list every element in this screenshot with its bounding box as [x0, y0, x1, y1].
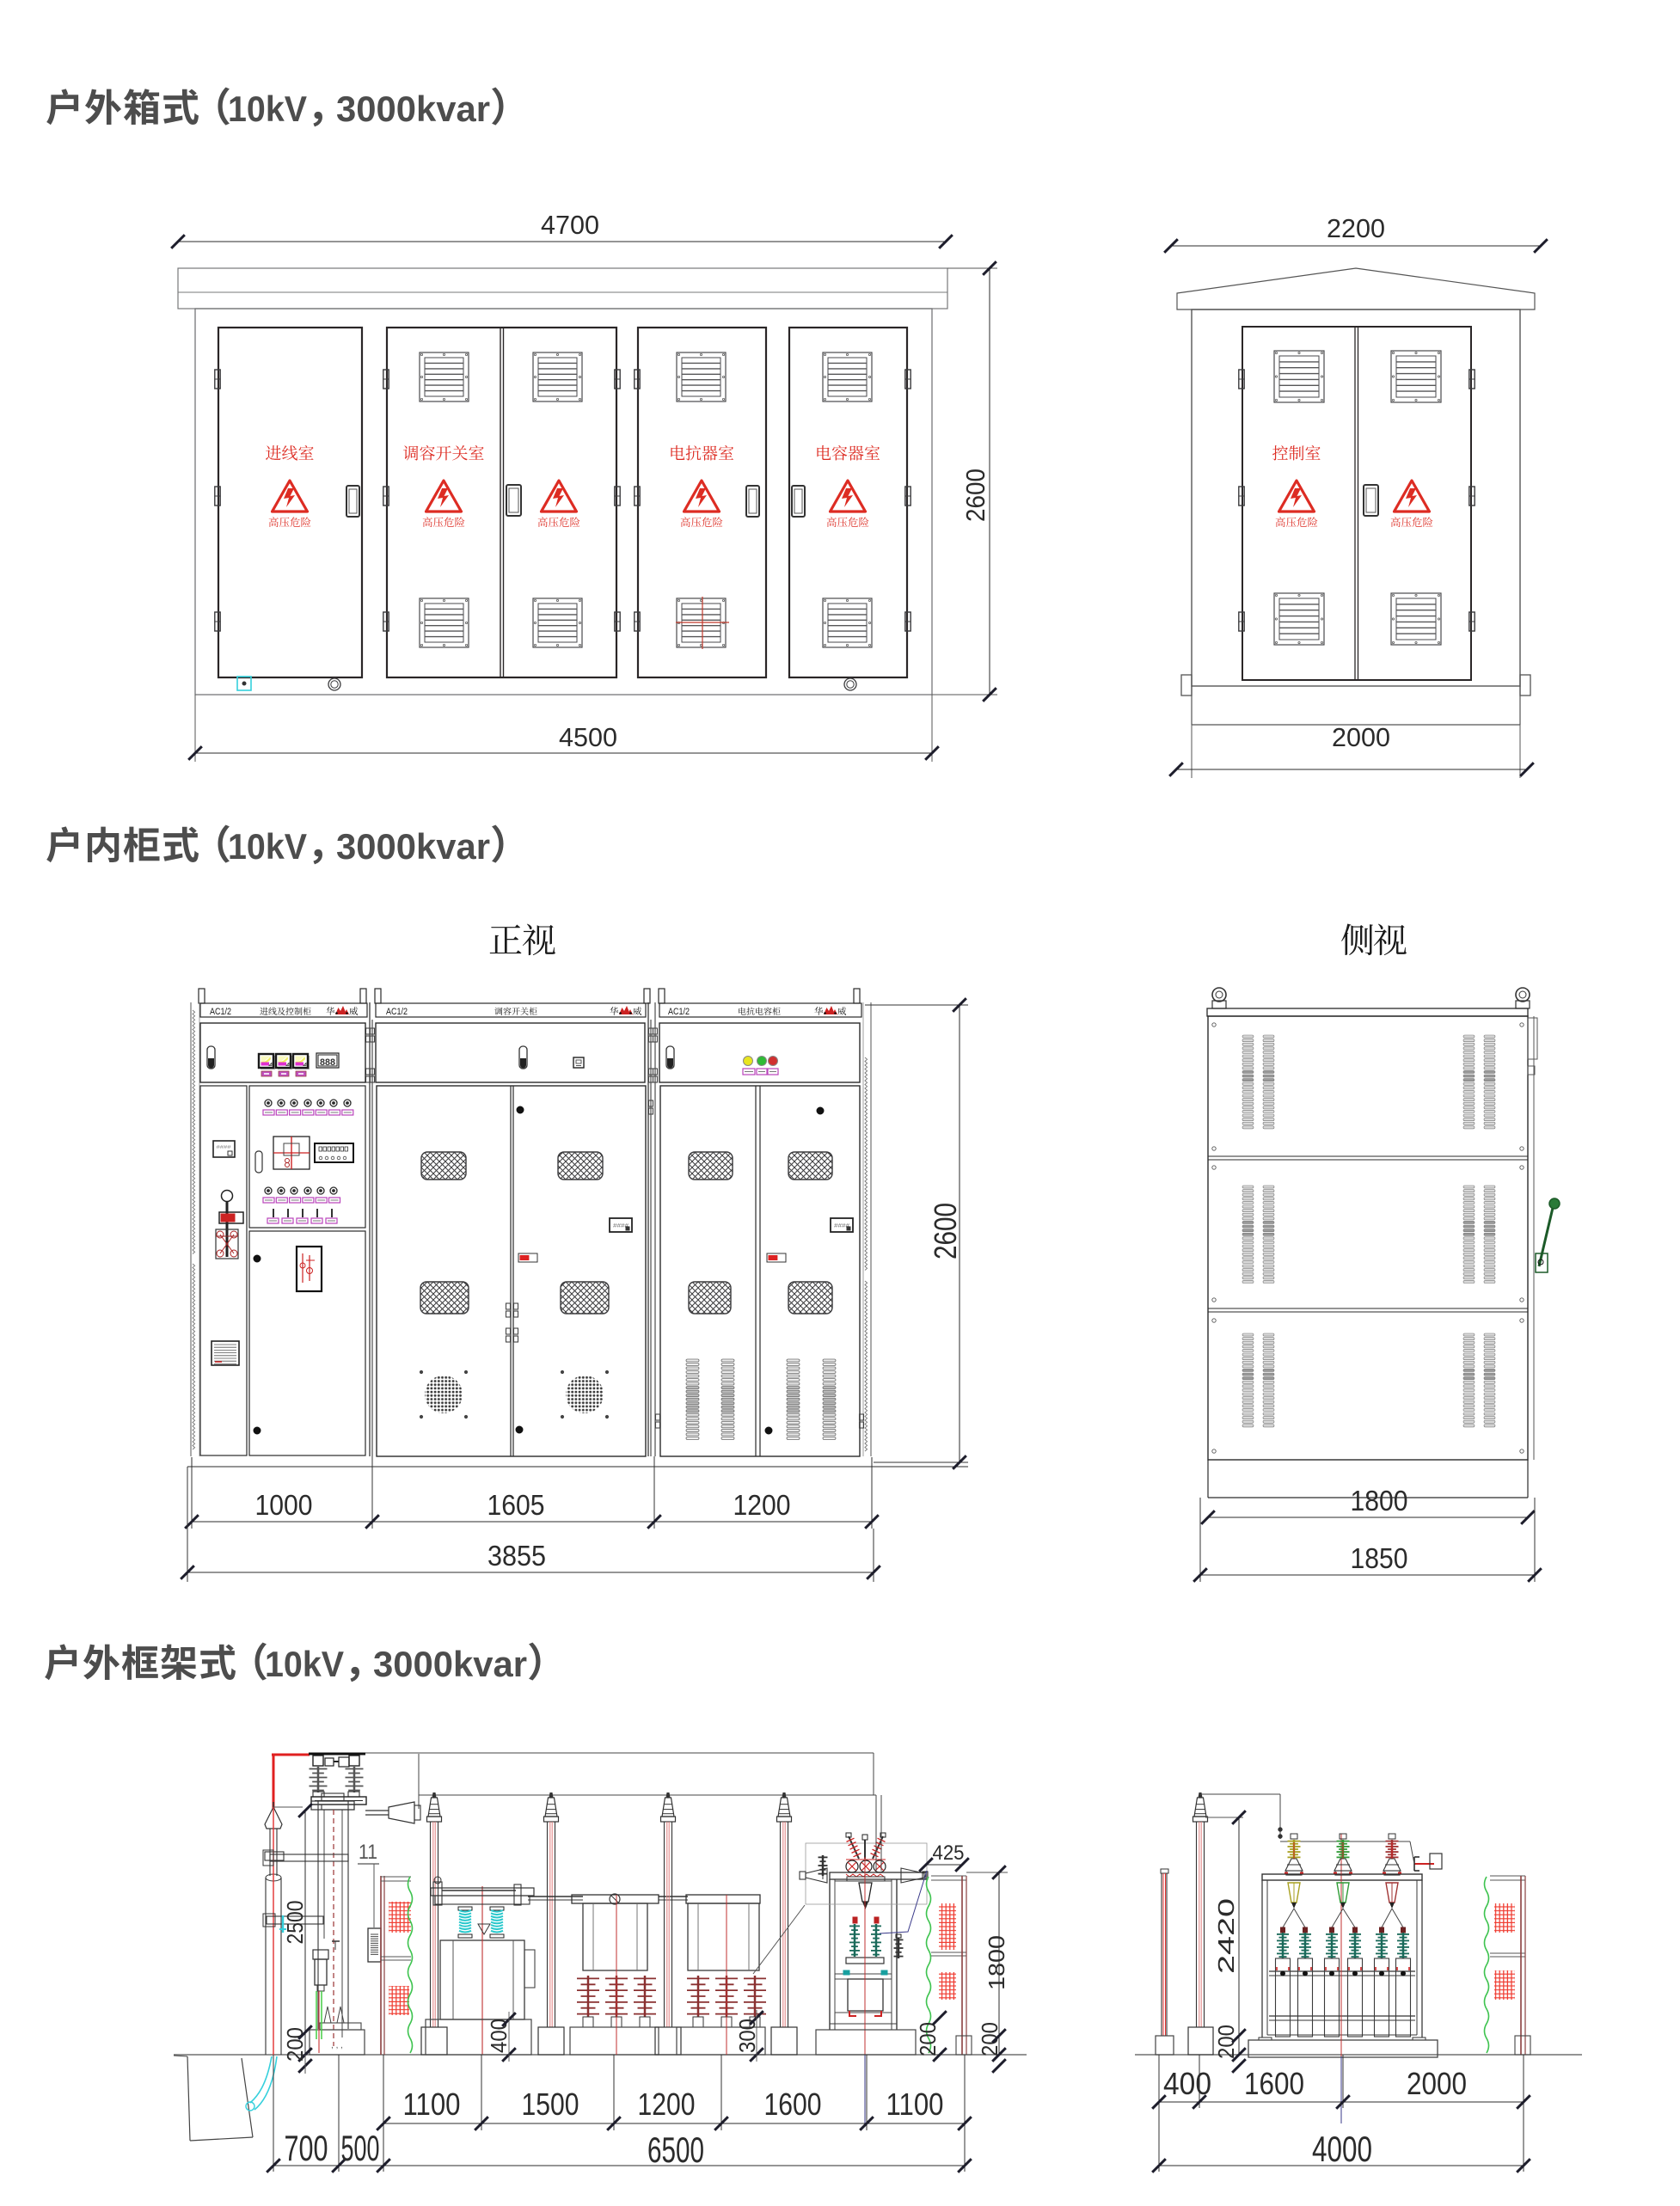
svg-text:1500: 1500 [522, 2087, 579, 2122]
svg-text:3000kvar: 3000kvar [373, 1644, 527, 1684]
svg-text:AC1/2: AC1/2 [668, 1007, 690, 1017]
svg-text:2420: 2420 [1213, 1898, 1239, 1974]
svg-text:1600: 1600 [764, 2087, 822, 2122]
svg-text:1600: 1600 [1244, 2066, 1304, 2101]
svg-text:10kV: 10kV [228, 826, 307, 867]
svg-text:4000: 4000 [1312, 2129, 1372, 2169]
svg-text:####: #### [217, 1145, 231, 1150]
svg-text:200: 200 [915, 2022, 941, 2056]
svg-text:425: 425 [933, 1841, 965, 1865]
svg-text:AC1/2: AC1/2 [386, 1007, 408, 1017]
svg-text:4700: 4700 [541, 210, 599, 240]
svg-text:3855: 3855 [487, 1540, 546, 1572]
svg-text:, , ,: , , , [331, 2041, 343, 2050]
svg-text:1200: 1200 [638, 2087, 696, 2122]
svg-text:2000: 2000 [1407, 2066, 1467, 2101]
svg-text:2500: 2500 [282, 1901, 308, 1945]
svg-text:1100: 1100 [403, 2087, 461, 2122]
svg-text:200: 200 [1213, 2025, 1239, 2059]
svg-text:2600: 2600 [960, 469, 990, 522]
svg-text:11: 11 [359, 1841, 377, 1864]
svg-text:3000kvar: 3000kvar [336, 89, 490, 129]
svg-text:10kV: 10kV [265, 1644, 344, 1684]
svg-text:1100: 1100 [886, 2087, 944, 2122]
svg-text:300: 300 [734, 2019, 760, 2053]
svg-text:2000: 2000 [1332, 722, 1390, 752]
svg-text:1800: 1800 [1351, 1485, 1408, 1517]
svg-text:4500: 4500 [559, 722, 617, 752]
svg-text:888: 888 [320, 1057, 335, 1068]
svg-text:3000kvar: 3000kvar [336, 826, 490, 867]
svg-text:200: 200 [977, 2022, 1002, 2056]
svg-text:400: 400 [486, 2019, 512, 2053]
svg-text:500: 500 [341, 2128, 380, 2168]
svg-text:1605: 1605 [487, 1489, 545, 1521]
svg-text:AC1/2: AC1/2 [210, 1007, 231, 1017]
svg-text:700: 700 [285, 2128, 328, 2168]
svg-text:1850: 1850 [1351, 1542, 1408, 1574]
svg-text:2600: 2600 [928, 1203, 963, 1259]
svg-text:1800: 1800 [984, 1935, 1009, 1990]
svg-text:2200: 2200 [1327, 213, 1385, 243]
svg-text:10kV: 10kV [228, 89, 307, 129]
svg-text:1000: 1000 [255, 1489, 313, 1521]
svg-text:1200: 1200 [733, 1489, 791, 1521]
svg-text:6500: 6500 [647, 2129, 704, 2170]
svg-text:400: 400 [1163, 2066, 1211, 2101]
